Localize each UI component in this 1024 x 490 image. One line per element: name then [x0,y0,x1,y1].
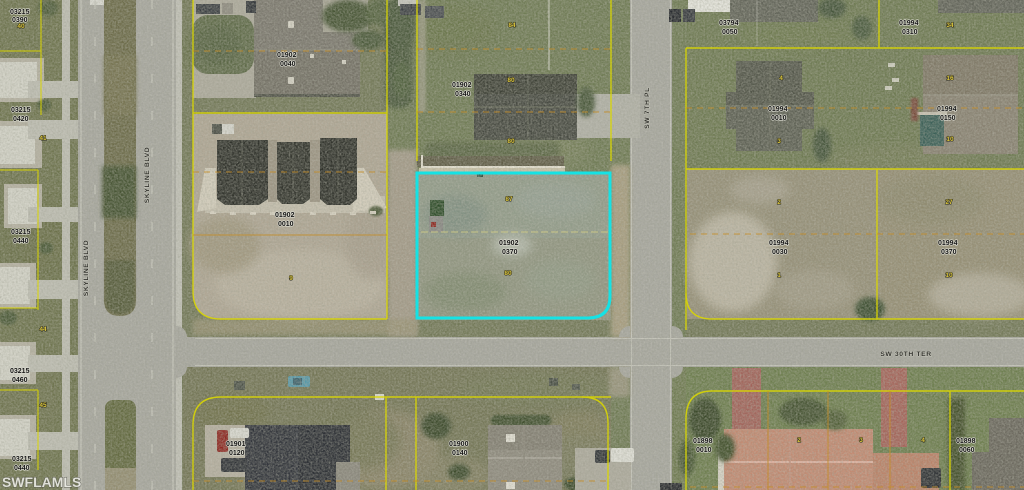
svg-text:0370: 0370 [941,249,957,256]
svg-text:0010: 0010 [771,115,787,122]
svg-text:84: 84 [508,22,516,29]
svg-text:0150: 0150 [940,115,956,122]
svg-text:03215: 03215 [12,456,32,463]
svg-text:0310: 0310 [902,29,918,36]
svg-text:0340: 0340 [455,91,471,98]
svg-text:0120: 0120 [229,450,245,457]
svg-text:01994: 01994 [899,20,919,27]
svg-text:03215: 03215 [11,107,31,114]
svg-text:41: 41 [39,135,47,142]
svg-text:01902: 01902 [452,82,472,89]
svg-text:0440: 0440 [13,238,29,245]
svg-text:01898: 01898 [956,438,976,445]
svg-text:9: 9 [289,275,293,282]
svg-text:16: 16 [946,75,954,82]
svg-text:80: 80 [507,77,515,84]
svg-text:4: 4 [779,75,783,82]
svg-text:01898: 01898 [693,438,713,445]
svg-text:80: 80 [504,270,512,277]
svg-text:80: 80 [507,138,515,145]
svg-text:0040: 0040 [280,61,296,68]
svg-text:SKYLINE BLVD: SKYLINE BLVD [83,240,90,297]
svg-text:SW 7TH PL: SW 7TH PL [644,87,651,129]
svg-text:0440: 0440 [14,465,30,472]
svg-text:4: 4 [921,437,925,444]
svg-text:01994: 01994 [938,240,958,247]
svg-text:34: 34 [946,22,954,29]
svg-text:1: 1 [777,272,781,279]
svg-text:01994: 01994 [769,240,789,247]
svg-text:3: 3 [859,437,863,444]
svg-text:01900: 01900 [449,441,469,448]
svg-text:01902: 01902 [277,52,297,59]
svg-text:0010: 0010 [278,221,294,228]
svg-text:01901: 01901 [226,441,246,448]
svg-text:10: 10 [945,272,953,279]
svg-text:01994: 01994 [768,106,788,113]
svg-text:10: 10 [946,136,954,143]
svg-text:0030: 0030 [772,249,788,256]
svg-text:0010: 0010 [696,447,712,454]
svg-text:01994: 01994 [937,106,957,113]
svg-text:03215: 03215 [10,368,30,375]
svg-text:0050: 0050 [722,29,738,36]
svg-text:0420: 0420 [13,116,29,123]
svg-text:40: 40 [17,23,25,30]
svg-text:0140: 0140 [452,450,468,457]
svg-text:0370: 0370 [502,249,518,256]
svg-text:2: 2 [797,437,801,444]
svg-text:SW 30TH TER: SW 30TH TER [880,351,932,358]
svg-text:01902: 01902 [499,240,519,247]
svg-text:2: 2 [777,199,781,206]
svg-text:3: 3 [777,138,781,145]
svg-text:27: 27 [945,199,953,206]
svg-text:45: 45 [39,402,47,409]
svg-text:03215: 03215 [10,9,30,16]
svg-text:01902: 01902 [275,212,295,219]
svg-text:0460: 0460 [12,377,28,384]
svg-text:87: 87 [505,196,513,203]
svg-text:0060: 0060 [959,447,975,454]
svg-text:03794: 03794 [719,20,739,27]
svg-text:SKYLINE BLVD: SKYLINE BLVD [144,147,151,204]
svg-text:03215: 03215 [11,229,31,236]
svg-text:SWFLAMLS: SWFLAMLS [2,474,81,490]
svg-text:44: 44 [39,326,47,333]
